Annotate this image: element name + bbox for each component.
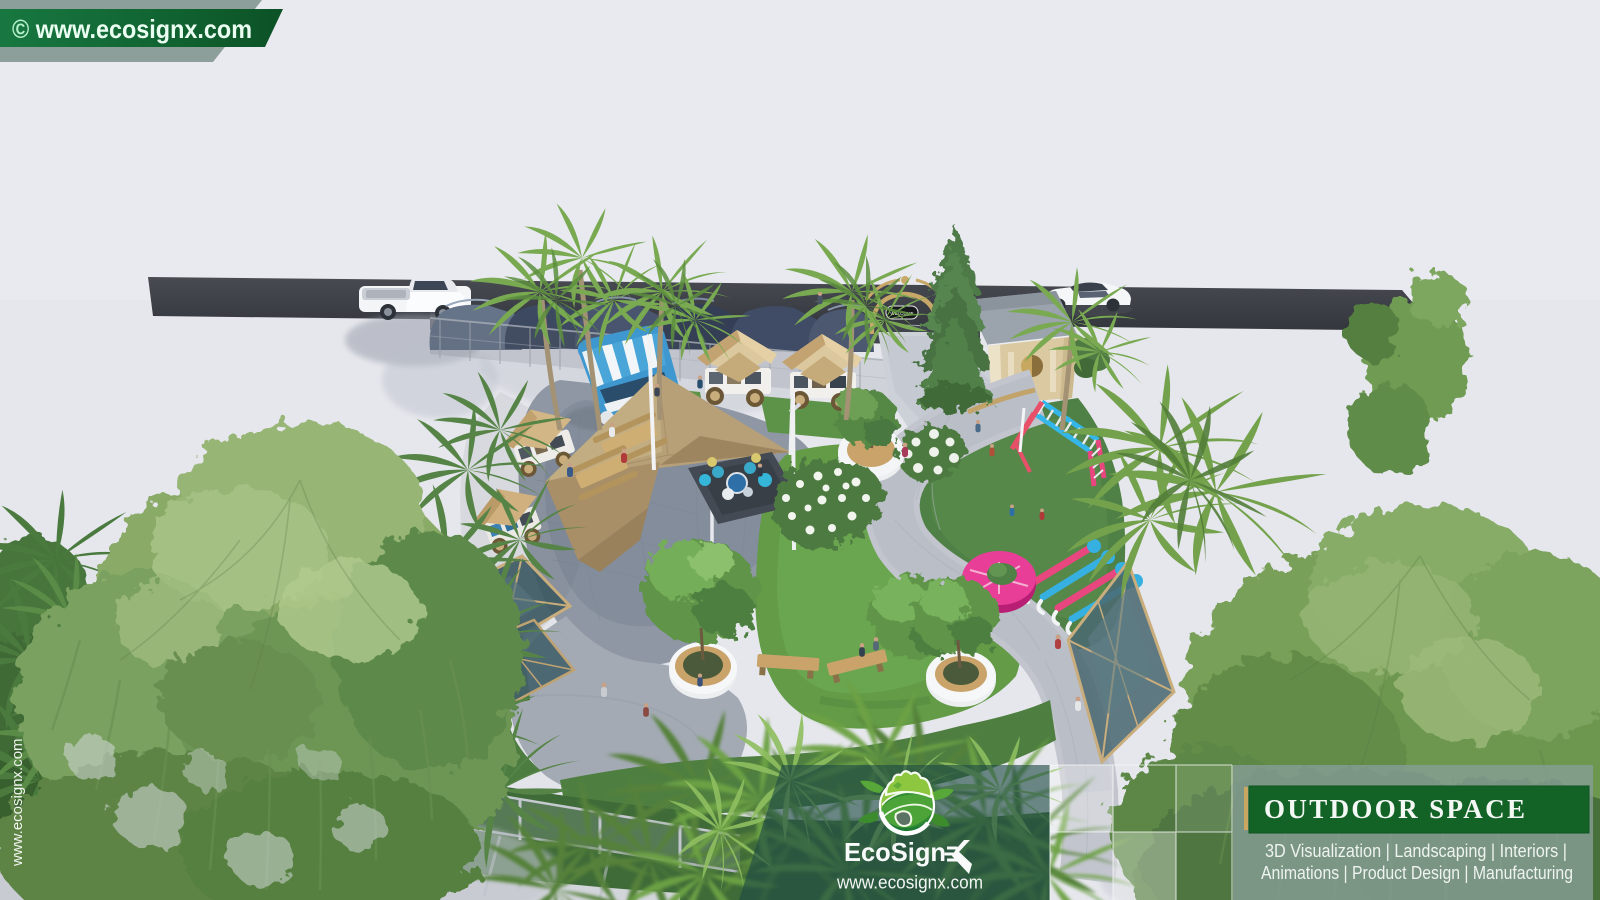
svg-text:OUTDOOR SPACE: OUTDOOR SPACE [1264, 794, 1532, 824]
svg-text:EcoSign: EcoSign [844, 837, 946, 867]
svg-text:3D Visualization | Landscaping: 3D Visualization | Landscaping | Interio… [1265, 841, 1567, 861]
svg-text:www.ecosignx.com: www.ecosignx.com [836, 872, 983, 893]
svg-text:Animations | Product Design |: Animations | Product Design | Manufactur… [1261, 863, 1573, 883]
svg-text:© www.ecosignx.com: © www.ecosignx.com [12, 14, 252, 44]
svg-text:www.ecosignx.com: www.ecosignx.com [9, 738, 26, 867]
